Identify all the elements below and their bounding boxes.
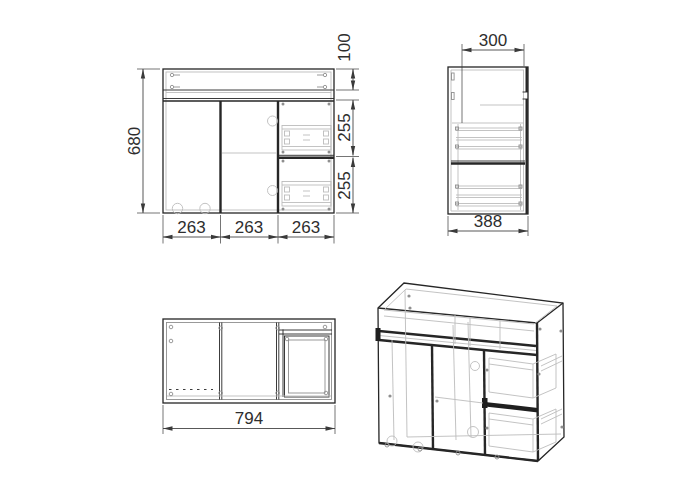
dim-label-section-2: 263 (235, 218, 263, 237)
iso-hinge-circle (471, 362, 480, 371)
iso-upper-drawer (489, 354, 556, 398)
side-dimensions: 300 388 (448, 31, 528, 237)
dim-label-lower-drawer: 255 (335, 171, 354, 199)
dim-label-top-rail: 100 (335, 33, 354, 61)
iso-lower-drawer (489, 409, 556, 452)
screw-dots (282, 103, 331, 211)
leg-circle (200, 203, 210, 213)
side-upper-rails (456, 128, 522, 149)
top-view-drawer-box (285, 336, 330, 397)
upper-drawer-box (282, 126, 331, 151)
side-view (448, 67, 528, 214)
cabinet-technical-drawing: 680 100 255 255 263 263 263 (0, 0, 700, 500)
front-dimensions: 680 100 255 255 263 263 263 (125, 33, 360, 243)
dim-label-width: 794 (235, 409, 263, 428)
top-dimensions: 794 (163, 405, 335, 434)
dim-label-depth: 388 (474, 212, 502, 231)
hinge-circle (268, 186, 278, 196)
top-view (163, 319, 335, 403)
cam-fitting-icons (170, 73, 326, 88)
leg-circle (172, 203, 182, 213)
lower-drawer-box (282, 182, 331, 207)
isometric-view (376, 283, 565, 461)
dim-label-front-height: 680 (125, 127, 144, 155)
front-view (163, 69, 334, 214)
side-lower-rails (456, 186, 522, 206)
dim-label-upper-drawer: 255 (335, 113, 354, 141)
iso-drawer-divider (485, 402, 538, 413)
hinge-circle (268, 116, 278, 126)
dim-label-section-1: 263 (177, 218, 205, 237)
dim-label-top-depth: 300 (479, 31, 507, 50)
drawing-sheet: 680 100 255 255 263 263 263 (0, 0, 700, 500)
side-screw-icons (452, 73, 455, 100)
dim-label-section-3: 263 (292, 218, 320, 237)
